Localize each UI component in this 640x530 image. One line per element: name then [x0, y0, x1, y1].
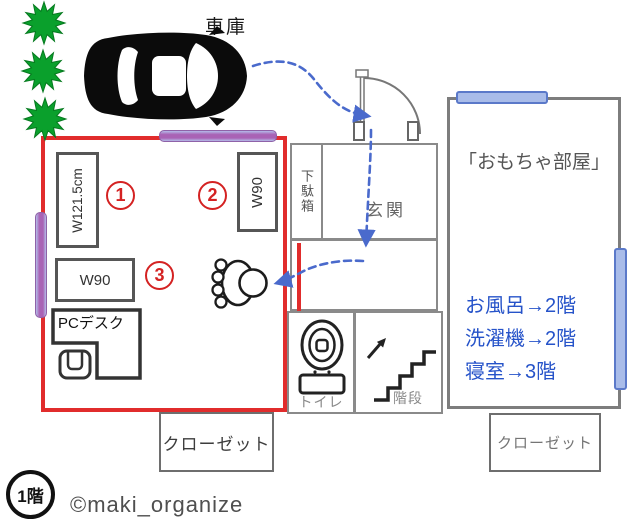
- floor-badge-label: 1階: [17, 482, 43, 507]
- number-3-text: 3: [154, 265, 164, 286]
- window-toyroom-right: [614, 248, 627, 390]
- circled-number-3: 3: [145, 261, 174, 290]
- hallway-area: [290, 239, 438, 311]
- circled-number-1: 1: [106, 181, 135, 210]
- circled-number-2: 2: [198, 181, 227, 210]
- furniture-1-box: W121.5cm: [56, 152, 99, 248]
- entrance-label: 玄関: [340, 196, 432, 221]
- window-left-purple: [35, 212, 47, 318]
- closet-left-label: クローゼット: [163, 430, 271, 455]
- note-bedroom: 寝室→3階: [465, 356, 556, 389]
- number-2-text: 2: [207, 185, 217, 206]
- pc-desk-label: PCデスク: [58, 312, 124, 333]
- furniture-3-box: W90: [55, 258, 135, 302]
- credit-watermark: ©maki_organize: [70, 492, 243, 518]
- toilet-icon: [298, 319, 348, 399]
- note-bath: お風呂→2階: [465, 290, 576, 323]
- starburst-icons: [22, 2, 66, 140]
- person-icon: [211, 247, 273, 317]
- closet-left: クローゼット: [159, 412, 274, 472]
- shoe-cabinet-label: 下駄箱: [290, 143, 323, 240]
- toy-room-label: 「おもちゃ部屋」: [449, 147, 619, 174]
- number-1-text: 1: [115, 185, 125, 206]
- entrance-door-icon: [354, 70, 420, 140]
- furniture-3-size: W90: [80, 272, 111, 289]
- arrow-car-to-door: [253, 62, 368, 116]
- window-toyroom-top: [456, 91, 548, 104]
- closet-right: クローゼット: [489, 413, 601, 472]
- furniture-1-size: W121.5cm: [70, 168, 85, 233]
- red-door-marker: [297, 243, 301, 311]
- window-top-purple: [159, 130, 277, 142]
- car-icon: [84, 26, 247, 126]
- closet-right-label: クローゼット: [497, 432, 593, 453]
- floor-badge: 1階: [6, 470, 55, 519]
- stairs-label: 階段: [393, 388, 423, 408]
- note-laundry: 洗濯機→2階: [465, 323, 576, 356]
- furniture-2-size: W90: [249, 177, 266, 208]
- toilet-label: トイレ: [287, 392, 355, 412]
- furniture-2-box: W90: [237, 152, 278, 232]
- floor-plan-canvas: クローゼット クローゼット W121.5cm W90 W90 1 2 3 PCデ…: [0, 0, 640, 530]
- garage-label: 車庫: [205, 12, 247, 39]
